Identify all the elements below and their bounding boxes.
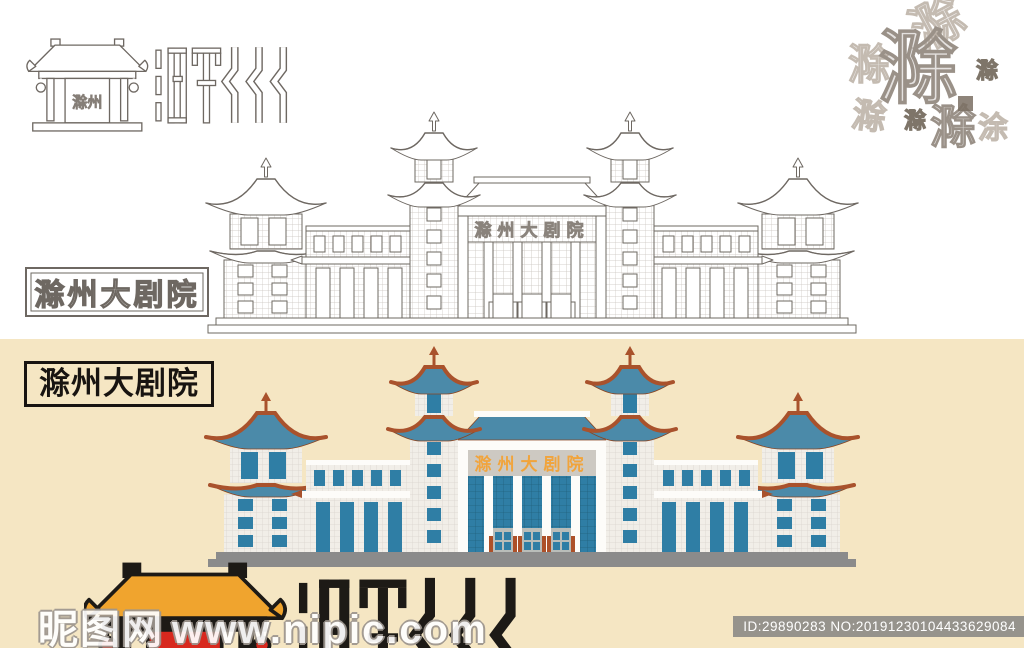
outline-title-text: 滁州大剧院 bbox=[35, 278, 200, 312]
theatre-color-illustration: 滁州大剧院 bbox=[202, 344, 862, 574]
outline-title-box: 滁州大剧院 bbox=[24, 264, 214, 320]
lantern-icon bbox=[129, 83, 138, 92]
nipic-watermark: 昵图网www.nipic.com bbox=[38, 597, 488, 648]
calligraphy-char: 滁 bbox=[976, 60, 998, 82]
calligraphy-char: 滁 bbox=[904, 110, 926, 132]
calligraphy-char: 滁 bbox=[850, 98, 888, 136]
theatre-base-platform bbox=[208, 318, 856, 333]
theatre-right-side bbox=[650, 158, 858, 318]
pavilion-icon: 滁州 bbox=[27, 39, 148, 131]
watermark-site-url: www.nipic.com bbox=[172, 608, 488, 648]
theatre-left-side bbox=[206, 392, 414, 552]
theatre-right-side bbox=[650, 392, 858, 552]
line-art-panel: 滁州 滁州大剧院 滁州大剧院 滁 滁 滁 滁 滁 滁 滁 涂 bbox=[0, 0, 1024, 339]
calligraphy-cluster-top: 滁 滁 滁 滁 滁 滁 滁 涂 bbox=[846, 4, 1024, 170]
theatre-sign-text: 滁州大剧院 bbox=[475, 454, 590, 474]
theatre-sign-text: 滁州大剧院 bbox=[475, 220, 590, 240]
lantern-icon bbox=[36, 83, 45, 92]
logo-door-characters: 滁州 bbox=[72, 94, 102, 112]
stock-image-preview: 滁州 滁州大剧院 滁州大剧院 滁 滁 滁 滁 滁 滁 滁 涂 bbox=[0, 0, 1024, 648]
watermark-site-name: 昵图网 bbox=[38, 608, 164, 648]
black-title-box: 滁州大剧院 bbox=[24, 361, 214, 407]
theatre-left-side bbox=[206, 158, 414, 318]
image-id-bar: ID:29890283 NO:20191230104433629084 bbox=[733, 616, 1024, 637]
calligraphy-char: 滁 bbox=[878, 28, 958, 108]
calligraphy-char: 涂 bbox=[978, 114, 1008, 144]
theatre-line-drawing: 滁州大剧院 bbox=[202, 110, 862, 340]
seal-stamp bbox=[958, 96, 973, 111]
